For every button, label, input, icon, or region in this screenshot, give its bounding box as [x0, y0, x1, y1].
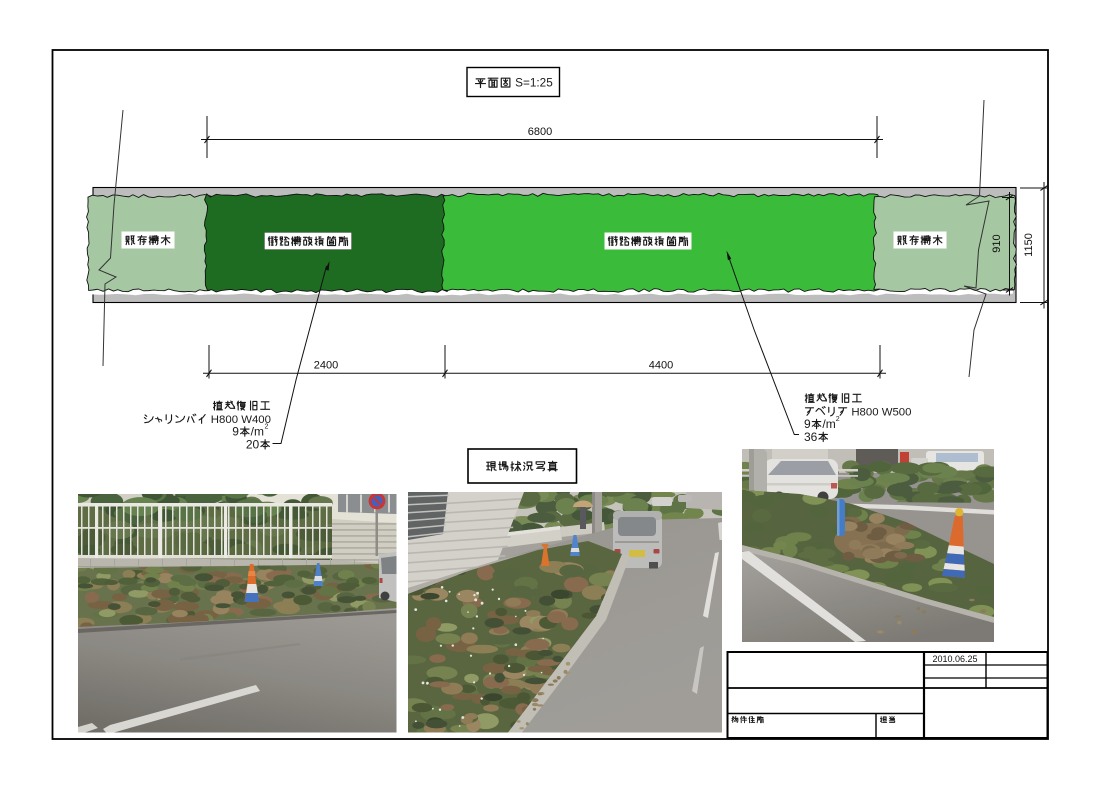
svg-text:H800 W500: H800 W500 [851, 406, 911, 418]
svg-text:/m: /m [822, 417, 835, 431]
svg-text:2010.06.25: 2010.06.25 [932, 654, 977, 664]
svg-text:2: 2 [265, 423, 269, 430]
svg-text:36: 36 [804, 430, 818, 444]
svg-text:1150: 1150 [1023, 233, 1035, 257]
svg-text:910: 910 [991, 234, 1003, 252]
svg-text:9: 9 [232, 425, 239, 439]
svg-text:20: 20 [246, 438, 260, 452]
svg-text:4400: 4400 [649, 360, 673, 372]
svg-text:2: 2 [836, 416, 840, 423]
svg-text:S=1:25: S=1:25 [515, 77, 553, 90]
svg-text:2400: 2400 [314, 360, 338, 372]
svg-text:6800: 6800 [528, 126, 552, 138]
